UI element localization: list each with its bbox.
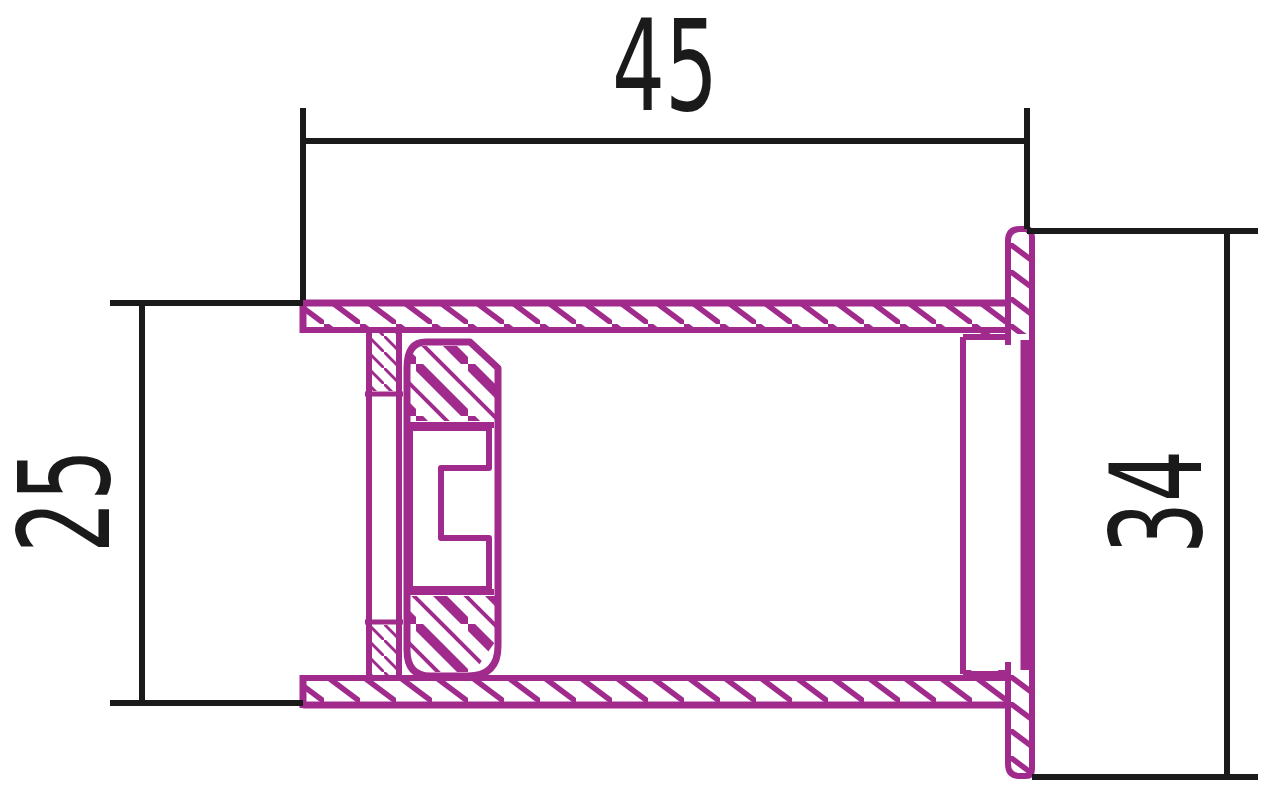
dim-text-25: 25 [0, 449, 139, 553]
tube-bottom-wall-hatch [304, 680, 1007, 703]
dimension-flange-diameter-34: 34 [1027, 231, 1258, 777]
insert-assembly [407, 342, 498, 676]
dimensions: 45 25 34 [0, 0, 1258, 777]
dimension-length-45: 45 [303, 0, 1027, 300]
dimension-outer-diameter-25: 25 [0, 303, 303, 703]
dim-text-45: 45 [612, 0, 718, 140]
drawing-canvas: 45 25 34 [0, 0, 1280, 802]
dim-text-34: 34 [1083, 450, 1231, 554]
washer-ring [365, 330, 403, 680]
part-section-drawing: 45 25 34 [0, 0, 1280, 802]
part-section [303, 229, 1032, 776]
flange [1008, 229, 1032, 776]
flange-top-hatch [1008, 232, 1030, 334]
flange-boss [961, 332, 1008, 677]
tube-top-wall-hatch [304, 305, 1007, 328]
flange-bottom-hatch [1008, 670, 1030, 773]
insert-lower-block-hatch [410, 596, 495, 672]
insert-slot-profile [410, 428, 489, 589]
